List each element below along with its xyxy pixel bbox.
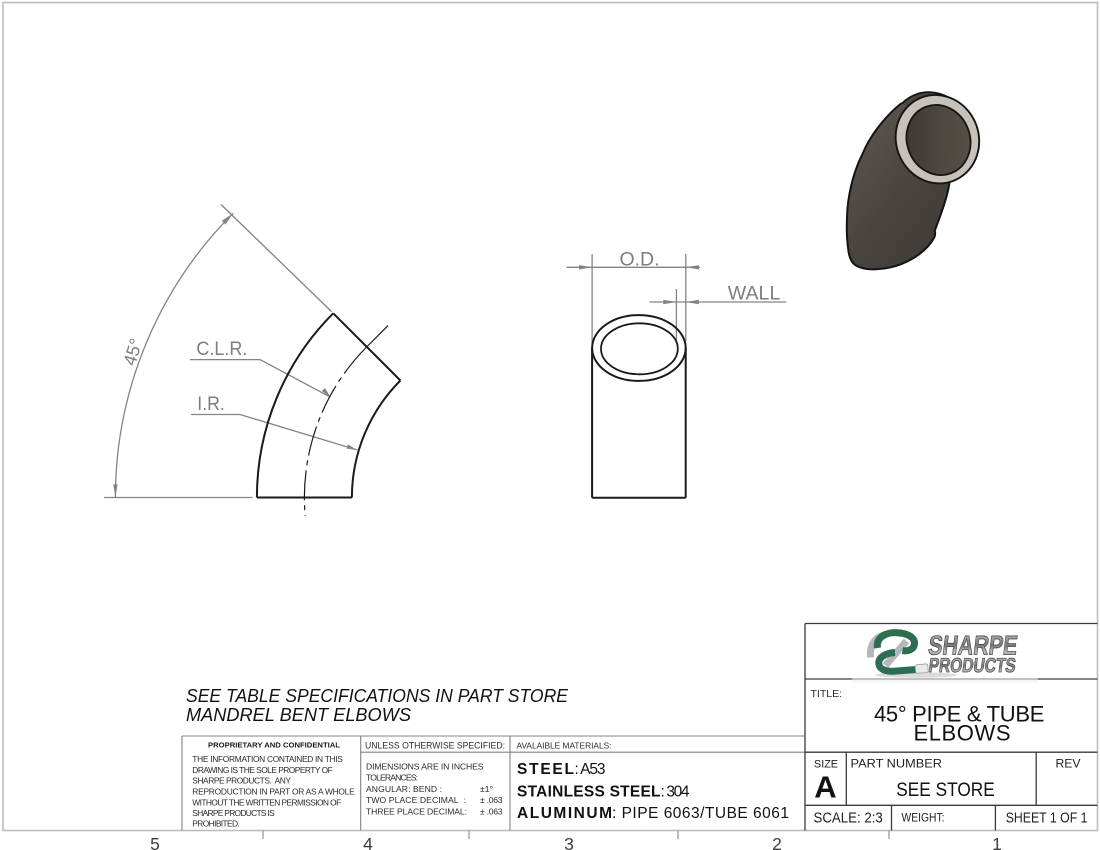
- svg-text:PRODUCTS: PRODUCTS: [927, 655, 1017, 677]
- svg-text:ANGULAR: BEND :: ANGULAR: BEND :: [366, 784, 442, 794]
- svg-text:45°: 45°: [119, 336, 146, 368]
- svg-text:SHEET 1 OF 1: SHEET 1 OF 1: [1006, 811, 1088, 827]
- svg-text:A: A: [814, 770, 836, 805]
- svg-text:SHARPE PRODUCTS IS: SHARPE PRODUCTS IS: [192, 808, 275, 818]
- svg-text:SHARPE PRODUCTS. ANY: SHARPE PRODUCTS. ANY: [192, 776, 291, 786]
- svg-text:: PIPE 6063/TUBE 6061: : PIPE 6063/TUBE 6061: [612, 805, 789, 822]
- svg-text:SEE STORE: SEE STORE: [896, 779, 994, 801]
- svg-text:ALUMINUM: ALUMINUM: [517, 805, 612, 822]
- svg-text:PART NUMBER: PART NUMBER: [851, 757, 943, 771]
- svg-text:REV: REV: [1056, 759, 1081, 771]
- svg-text:STAINLESS STEEL: STAINLESS STEEL: [517, 784, 661, 801]
- svg-text:PROPRIETARY AND CONFIDENTIAL: PROPRIETARY AND CONFIDENTIAL: [208, 740, 340, 749]
- svg-text:: 304: : 304: [661, 784, 690, 801]
- svg-text:4: 4: [363, 834, 373, 850]
- svg-text:TOLERANCES:: TOLERANCES:: [366, 773, 418, 783]
- svg-text:±1°: ±1°: [480, 784, 493, 794]
- svg-text:TWO PLACE DECIMAL :: TWO PLACE DECIMAL :: [366, 795, 466, 805]
- svg-text:WITHOUT THE WRITTEN PERMISSION: WITHOUT THE WRITTEN PERMISSION OF: [192, 797, 341, 807]
- svg-text:TITLE:: TITLE:: [811, 688, 843, 700]
- svg-text:MANDREL BENT ELBOWS: MANDREL BENT ELBOWS: [186, 705, 411, 725]
- svg-text:UNLESS OTHERWISE SPECIFIED:: UNLESS OTHERWISE SPECIFIED:: [365, 741, 505, 751]
- svg-text:1: 1: [992, 834, 1002, 850]
- svg-text:: A53: : A53: [575, 761, 606, 778]
- svg-text:DIMENSIONS ARE IN INCHES: DIMENSIONS ARE IN INCHES: [366, 762, 484, 772]
- svg-text:2: 2: [772, 834, 782, 850]
- svg-text:THE INFORMATION CONTAINED IN T: THE INFORMATION CONTAINED IN THIS: [192, 754, 343, 764]
- svg-text:SEE TABLE SPECIFICATIONS IN PA: SEE TABLE SPECIFICATIONS IN PART STORE: [186, 686, 569, 706]
- svg-text:I.R.: I.R.: [197, 394, 225, 415]
- svg-text:C.L.R.: C.L.R.: [196, 339, 247, 360]
- svg-text:5: 5: [150, 834, 160, 850]
- svg-text:STEEL: STEEL: [517, 761, 574, 778]
- svg-text:DRAWING IS THE SOLE PROPERTY O: DRAWING IS THE SOLE PROPERTY OF: [192, 765, 332, 775]
- svg-text:O.D.: O.D.: [620, 249, 660, 271]
- svg-text:3: 3: [564, 834, 574, 850]
- svg-text:AVALAIBLE MATERIALS:: AVALAIBLE MATERIALS:: [517, 741, 612, 751]
- svg-text:± .063: ± .063: [480, 795, 503, 805]
- svg-text:WALL: WALL: [728, 283, 781, 305]
- svg-text:WEIGHT:: WEIGHT:: [902, 813, 945, 825]
- svg-text:± .063: ± .063: [480, 806, 503, 816]
- svg-text:SCALE: 2:3: SCALE: 2:3: [814, 811, 883, 827]
- svg-text:THREE PLACE DECIMAL:: THREE PLACE DECIMAL:: [366, 806, 467, 816]
- svg-text:REPRODUCTION IN PART OR AS A W: REPRODUCTION IN PART OR AS A WHOLE: [192, 786, 355, 796]
- svg-text:ELBOWS: ELBOWS: [914, 721, 1011, 746]
- svg-text:PROHIBITED.: PROHIBITED.: [192, 819, 240, 829]
